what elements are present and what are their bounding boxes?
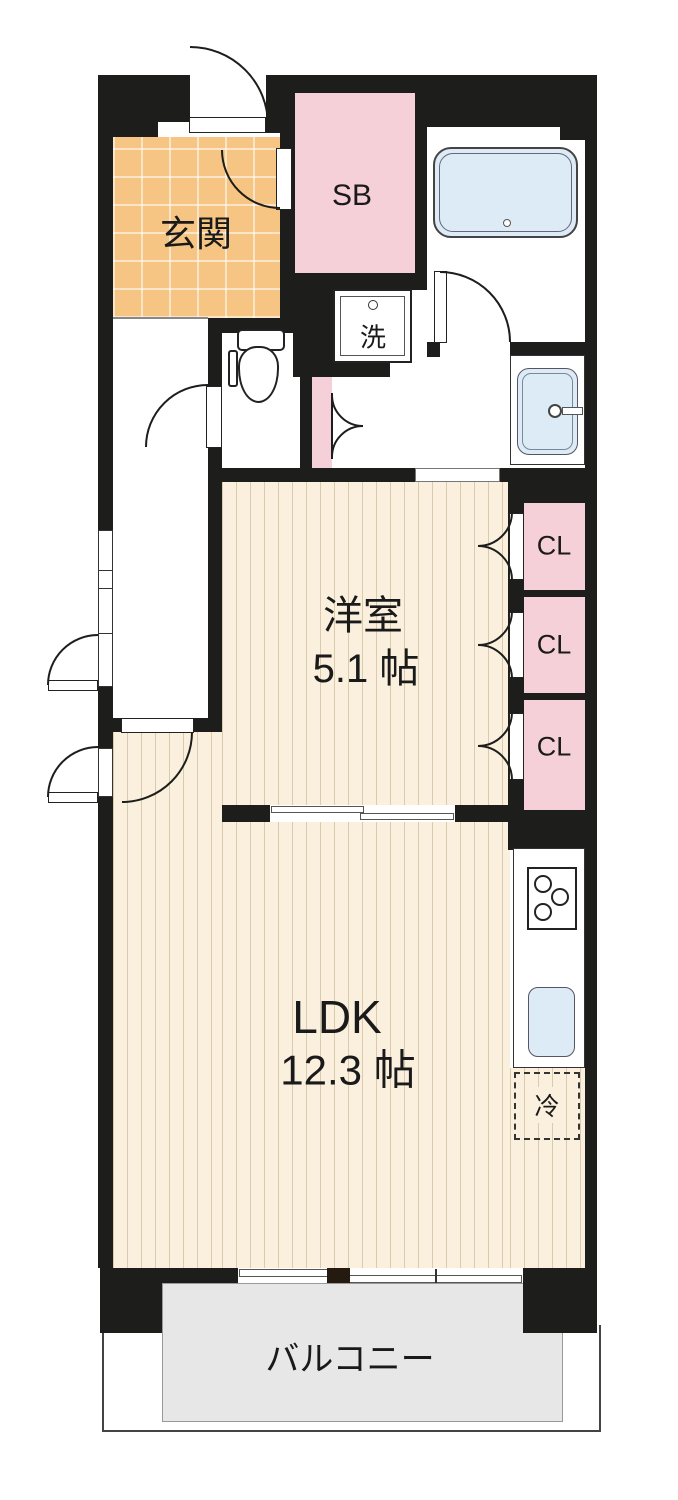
balcony-label: バルコニー	[265, 1332, 434, 1381]
shoebox-label: SB	[332, 179, 372, 213]
closet-3-label: CL	[537, 732, 572, 763]
front-door-arc	[190, 47, 268, 125]
ldk-size: 12.3 帖	[280, 1037, 415, 1098]
washroom-bifold-door	[332, 393, 363, 459]
floorplan: 玄関 SB 洗 洋室 5.1 帖 CL CL CL LDK 12.3 帖 冷 バ…	[0, 0, 678, 1500]
ldk-door-arc	[122, 732, 192, 802]
fridge-label: 冷	[532, 1087, 561, 1123]
service-door-b-arc	[48, 747, 98, 797]
genkan-label: 玄関	[160, 205, 232, 257]
shoebox-door-arc	[222, 150, 280, 208]
closet-2-bifold	[478, 612, 512, 678]
closet-1-label: CL	[537, 531, 572, 562]
toilet-door-arc	[146, 385, 208, 447]
service-door-a-arc	[48, 635, 98, 685]
door-swing-arcs	[0, 0, 678, 1500]
laundry-label: 洗	[360, 318, 386, 355]
western-room-size: 5.1 帖	[313, 636, 420, 694]
western-room-label: 洋室	[323, 583, 403, 641]
bathroom-door-arc	[440, 272, 510, 342]
closet-2-label: CL	[537, 630, 572, 661]
closet-3-bifold	[478, 713, 512, 780]
closet-1-bifold	[478, 513, 512, 580]
